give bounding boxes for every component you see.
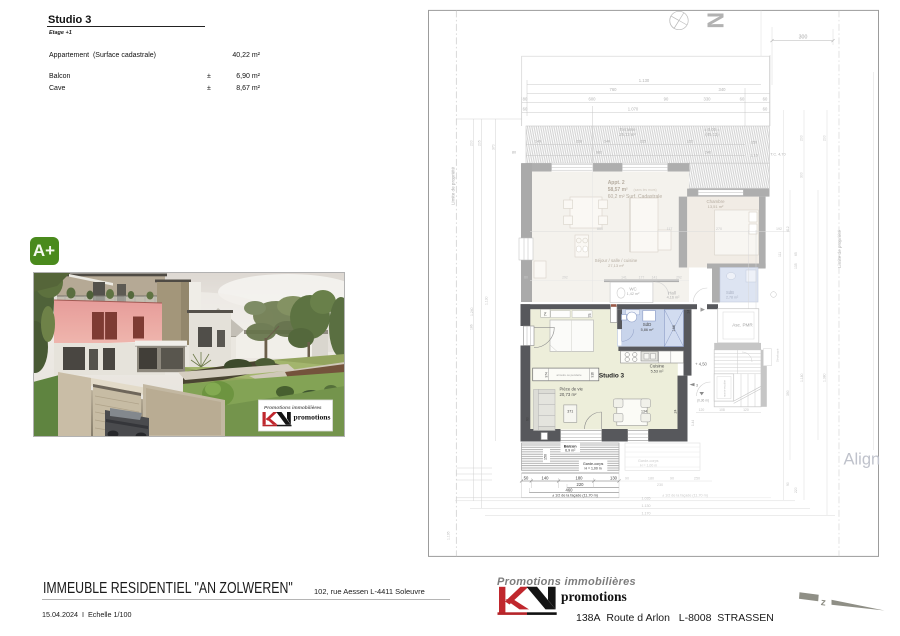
svg-text:270: 270 <box>716 227 722 231</box>
svg-text:60: 60 <box>763 97 768 102</box>
svg-text:228: 228 <box>576 140 582 144</box>
svg-text:z: z <box>820 597 826 609</box>
svg-text:1.195: 1.195 <box>447 531 451 540</box>
svg-text:27,13 m²: 27,13 m² <box>608 263 624 268</box>
svg-text:WC: WC <box>629 287 636 292</box>
svg-text:220: 220 <box>794 487 798 493</box>
svg-text:390: 390 <box>786 390 790 396</box>
svg-text:134: 134 <box>641 410 647 414</box>
svg-text:150: 150 <box>751 141 757 145</box>
svg-text:220: 220 <box>577 482 585 487</box>
svg-text:4,16 m²: 4,16 m² <box>667 296 681 300</box>
svg-text:1.130: 1.130 <box>639 78 650 83</box>
svg-text:200: 200 <box>470 140 474 146</box>
svg-text:SdB: SdB <box>726 290 734 295</box>
svg-text:1.180: 1.180 <box>800 373 804 382</box>
svg-text:141: 141 <box>652 276 658 280</box>
svg-text:186: 186 <box>470 324 474 330</box>
svg-text:Cuisine: Cuisine <box>650 364 665 369</box>
svg-text:177: 177 <box>639 276 645 280</box>
svg-text:1.035: 1.035 <box>642 497 651 501</box>
svg-text:180: 180 <box>576 476 584 481</box>
svg-text:75: 75 <box>588 314 592 318</box>
svg-text:200: 200 <box>823 135 827 141</box>
svg-text:74: 74 <box>543 312 547 316</box>
svg-text:250: 250 <box>694 477 700 481</box>
svg-text:1.130: 1.130 <box>642 504 651 508</box>
svg-text:1.10: 1.10 <box>750 154 757 158</box>
svg-text:340: 340 <box>719 87 727 92</box>
svg-text:13,51 m²: 13,51 m² <box>708 204 724 209</box>
svg-text:65: 65 <box>794 252 798 256</box>
svg-text:T.C. 4,70: T.C. 4,70 <box>770 153 785 157</box>
svg-text:90: 90 <box>625 477 629 481</box>
svg-text:225: 225 <box>640 140 646 144</box>
svg-text:60: 60 <box>763 107 768 112</box>
svg-text:H = 1,00 m: H = 1,00 m <box>640 464 657 468</box>
svg-text:5,86 m²: 5,86 m² <box>641 328 655 332</box>
svg-text:90: 90 <box>664 97 669 102</box>
svg-text:130: 130 <box>610 476 618 481</box>
svg-text:(0,36 m): (0,36 m) <box>697 399 709 403</box>
svg-text:120: 120 <box>743 408 749 412</box>
svg-text:Garde-corps: Garde-corps <box>638 459 659 463</box>
svg-text:1.44: 1.44 <box>691 420 695 426</box>
svg-text:20,73 m²: 20,73 m² <box>560 392 578 397</box>
svg-text:117: 117 <box>667 227 673 231</box>
svg-text:3: 3 <box>696 384 698 388</box>
svg-text:50: 50 <box>524 476 529 481</box>
svg-text:Appt. 2: Appt. 2 <box>608 180 625 186</box>
svg-text:90: 90 <box>786 482 790 486</box>
svg-text:H = 1,00 m: H = 1,00 m <box>584 466 601 470</box>
svg-text:5,53 m²: 5,53 m² <box>651 369 665 373</box>
svg-text:80: 80 <box>524 276 528 280</box>
svg-text:760: 760 <box>610 87 618 92</box>
svg-text:25,12 m²: 25,12 m² <box>619 132 636 137</box>
svg-text:108: 108 <box>719 408 725 412</box>
svg-text:58,57 m²: 58,57 m² <box>608 187 628 193</box>
svg-text:240: 240 <box>705 151 711 155</box>
svg-text:150: 150 <box>544 454 548 460</box>
svg-text:916: 916 <box>591 372 595 378</box>
svg-text:24: 24 <box>673 410 677 414</box>
svg-text:Studio 3: Studio 3 <box>599 372 625 379</box>
svg-text:+ 4,50: + 4,50 <box>695 362 707 367</box>
svg-text:90: 90 <box>670 477 674 481</box>
svg-text:armoire ou penderie: armoire ou penderie <box>556 373 581 377</box>
svg-text:180: 180 <box>648 477 654 481</box>
svg-text:2,78 m²: 2,78 m² <box>726 296 739 300</box>
svg-text:6,9 m²: 6,9 m² <box>565 448 576 452</box>
svg-text:980: 980 <box>596 151 602 155</box>
svg-text:150: 150 <box>687 140 693 144</box>
svg-text:60: 60 <box>523 107 528 112</box>
svg-text:370: 370 <box>492 144 496 150</box>
svg-text:200: 200 <box>800 135 804 141</box>
svg-text:412: 412 <box>786 226 790 232</box>
svg-text:600: 600 <box>589 97 597 102</box>
svg-text:± 1/2 de la façade (11,70 m): ± 1/2 de la façade (11,70 m) <box>552 494 598 498</box>
svg-text:60,2 m² Surf. Cadastrale: 60,2 m² Surf. Cadastrale <box>608 194 663 200</box>
svg-text:140: 140 <box>542 476 550 481</box>
svg-text:140: 140 <box>604 140 610 144</box>
svg-text:974: 974 <box>545 372 549 378</box>
svg-text:1,42 m²: 1,42 m² <box>627 292 641 296</box>
svg-text:Limite de propriété: Limite de propriété <box>451 167 456 205</box>
svg-text:60: 60 <box>525 417 529 421</box>
svg-text:300: 300 <box>799 35 808 41</box>
svg-text:330: 330 <box>704 97 712 102</box>
svg-text:188: 188 <box>672 325 676 331</box>
svg-text:111: 111 <box>778 252 782 257</box>
svg-text:(sans les murs): (sans les murs) <box>634 188 657 192</box>
svg-text:371: 371 <box>567 410 573 414</box>
svg-text:Développé: Développé <box>776 348 780 362</box>
svg-text:Pièce de vie: Pièce de vie <box>560 387 584 392</box>
svg-text:promotions: promotions <box>561 589 627 604</box>
svg-text:135: 135 <box>794 263 798 269</box>
svg-text:460: 460 <box>566 488 574 493</box>
svg-text:860: 860 <box>597 227 603 231</box>
svg-text:80: 80 <box>512 151 516 155</box>
svg-text:24: 24 <box>686 310 690 314</box>
svg-text:N: N <box>703 12 729 29</box>
svg-text:monte-escalier: monte-escalier <box>723 380 727 397</box>
svg-text:1.070: 1.070 <box>628 107 639 112</box>
svg-text:60: 60 <box>740 97 745 102</box>
svg-text:1.170: 1.170 <box>642 511 651 515</box>
svg-text:141: 141 <box>621 276 627 280</box>
svg-text:230: 230 <box>657 483 663 487</box>
svg-text:Asc. PMR: Asc. PMR <box>732 323 753 328</box>
svg-text:120: 120 <box>699 408 705 412</box>
svg-text:1.130: 1.130 <box>485 296 489 305</box>
svg-text:± 1/2 de la façade (11,70 m): ± 1/2 de la façade (11,70 m) <box>662 494 708 498</box>
svg-text:(45,13): (45,13) <box>705 132 719 137</box>
svg-text:292: 292 <box>562 276 568 280</box>
svg-text:300: 300 <box>800 172 804 178</box>
svg-text:205: 205 <box>478 140 482 146</box>
svg-text:80: 80 <box>523 97 528 102</box>
svg-text:292: 292 <box>676 276 682 280</box>
svg-text:SdD: SdD <box>643 322 652 327</box>
svg-text:149: 149 <box>535 140 541 144</box>
svg-text:Limite de propriété: Limite de propriété <box>837 230 842 268</box>
svg-text:192: 192 <box>776 227 782 231</box>
svg-text:Garde-corps: Garde-corps <box>583 462 604 466</box>
svg-text:1.380: 1.380 <box>823 373 827 382</box>
svg-text:1.240: 1.240 <box>470 307 474 316</box>
